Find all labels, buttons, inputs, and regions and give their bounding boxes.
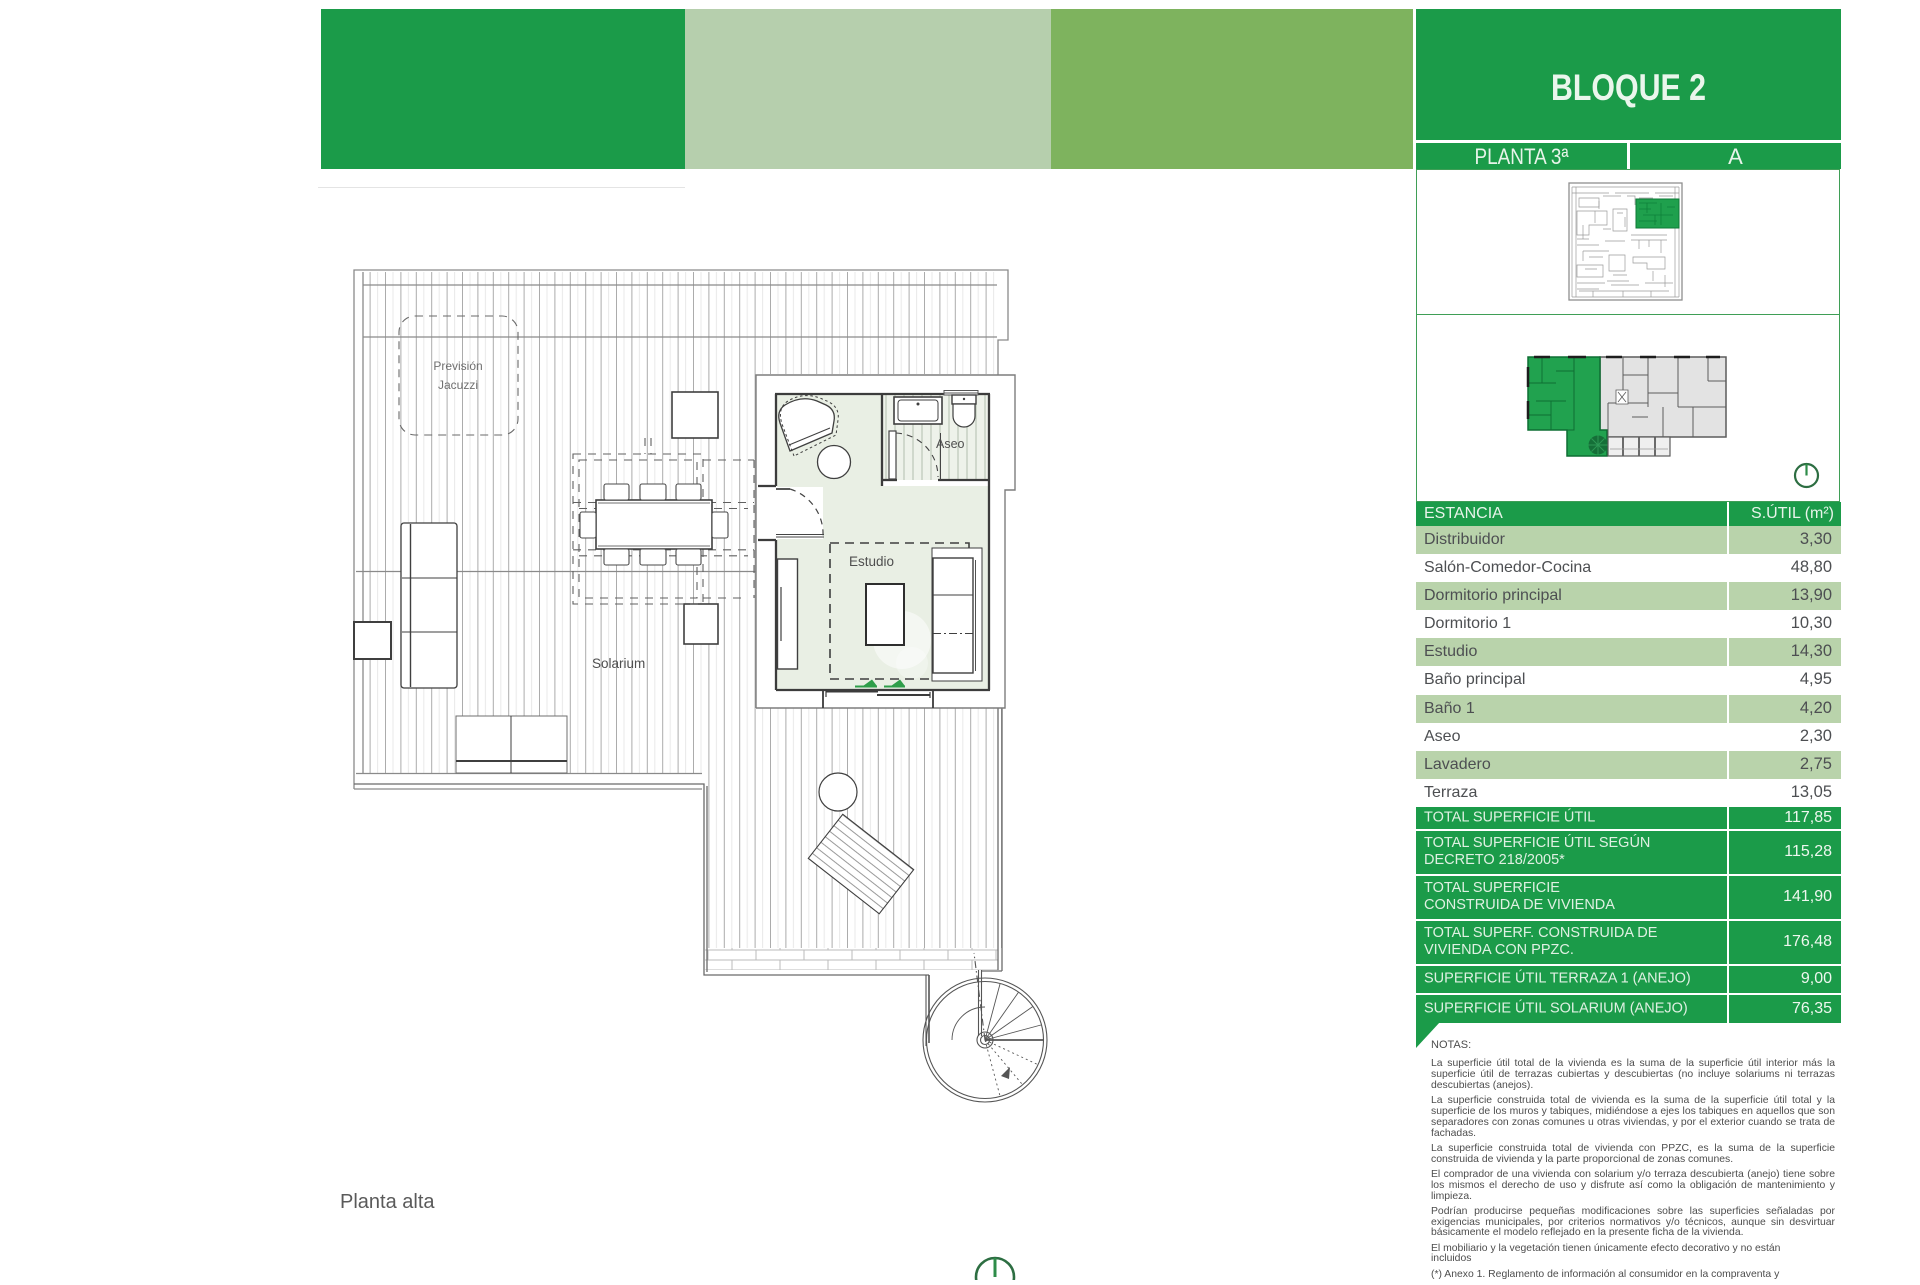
svg-text:Aseo: Aseo [936, 437, 965, 451]
svg-text:Planta alta: Planta alta [340, 1191, 435, 1213]
svg-text:Previsión: Previsión [433, 359, 482, 373]
svg-text:Estudio: Estudio [849, 554, 894, 569]
svg-text:Solarium: Solarium [592, 656, 645, 671]
svg-text:Jacuzzi: Jacuzzi [438, 378, 478, 392]
